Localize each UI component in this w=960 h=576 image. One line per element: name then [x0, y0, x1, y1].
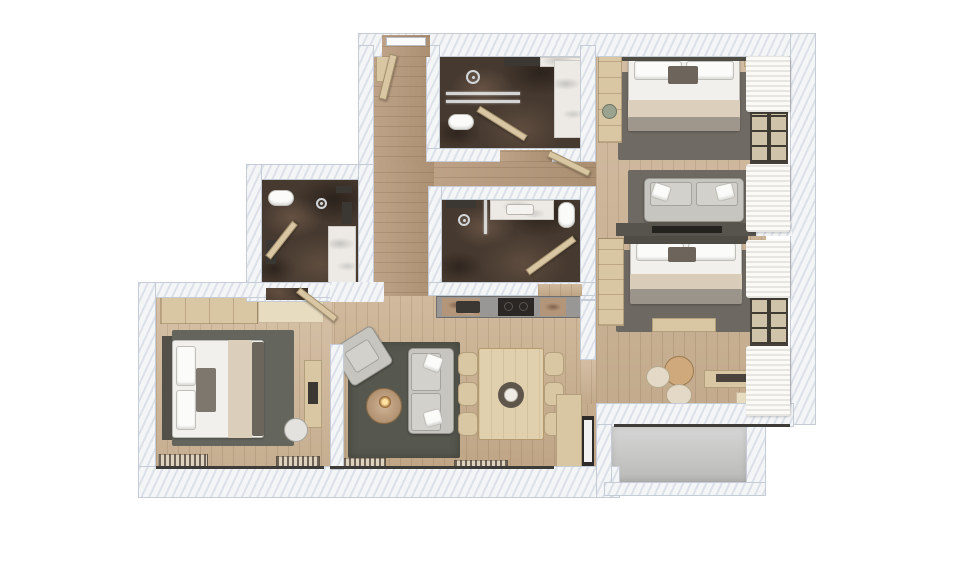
- window-line: [156, 466, 324, 469]
- floor-drain-icon: [458, 214, 470, 226]
- floor-plan: [0, 0, 960, 576]
- wall-balcony-right: [746, 424, 766, 490]
- laptop: [308, 382, 318, 404]
- bowl: [504, 388, 518, 402]
- sink: [506, 204, 534, 215]
- passage-to-bedroom-wing: [580, 360, 596, 404]
- nook-window-glass: [584, 420, 592, 462]
- bed-throw-gray: [628, 117, 740, 131]
- bathroom-1-door-gap: [500, 150, 552, 162]
- bed-bench: [652, 318, 716, 332]
- dining-chair: [458, 382, 478, 406]
- burner: [519, 302, 528, 311]
- toilet: [268, 190, 294, 206]
- curtain: [746, 56, 790, 112]
- bed-blanket-beige: [628, 100, 740, 118]
- bed-pillow: [176, 346, 196, 386]
- curtain: [746, 240, 790, 298]
- shower-glass: [446, 92, 520, 95]
- wardrobe-bedroom-3: [160, 296, 258, 324]
- shower-niche: [342, 202, 352, 224]
- entry-door-leaf: [386, 37, 426, 46]
- wall-left-wing-top: [138, 282, 346, 298]
- wall-divider-b: [580, 300, 596, 360]
- curtain: [746, 164, 790, 232]
- wall-balcony-bottom: [604, 482, 766, 496]
- wall-right: [790, 33, 816, 425]
- bathroom-shelf: [504, 57, 544, 66]
- candle: [379, 396, 391, 408]
- burner: [504, 302, 513, 311]
- bathroom-shelf: [446, 200, 476, 208]
- shower-head-icon: [466, 70, 480, 84]
- wall-bedroom-3-right: [330, 344, 344, 470]
- bed-runner: [668, 66, 698, 84]
- wall-bottom: [138, 466, 620, 498]
- wardrobe-bedroom-1: [598, 47, 622, 143]
- desk-chair: [284, 418, 308, 442]
- bed-runner: [196, 368, 216, 412]
- window: [750, 298, 788, 346]
- wall-junction: [330, 282, 384, 302]
- plant: [602, 104, 617, 119]
- shower-fixture: [336, 186, 352, 193]
- vanity: [328, 226, 356, 284]
- vanity: [554, 60, 582, 138]
- window-line: [330, 466, 554, 469]
- pouf: [646, 366, 670, 388]
- wall-bathroom-3-left: [428, 186, 442, 296]
- hall-cabinet: [556, 394, 582, 470]
- dining-chair: [544, 352, 564, 376]
- wardrobe-bedroom-2: [598, 238, 624, 326]
- toilet: [448, 114, 474, 130]
- bed-throw-gray: [630, 289, 742, 304]
- bed-headboard: [624, 236, 748, 244]
- shower-glass: [484, 200, 487, 234]
- bed-throw-gray: [252, 342, 264, 436]
- kitchen-sink: [456, 301, 480, 313]
- bed-runner: [668, 247, 696, 262]
- wall-bathroom-3-top: [428, 186, 596, 200]
- curtain: [746, 346, 790, 416]
- toilet: [558, 202, 575, 228]
- window: [750, 112, 788, 164]
- dining-chair: [458, 412, 478, 436]
- floor-balcony: [610, 425, 748, 482]
- bed-headboard: [162, 336, 172, 440]
- bed-blanket-beige: [228, 340, 252, 438]
- shower-head-icon: [316, 198, 327, 209]
- dining-chair: [458, 352, 478, 376]
- kitchen-marble-backsplash: [540, 298, 566, 316]
- shower-glass: [446, 100, 520, 103]
- wall-bathroom-2-top: [246, 164, 372, 180]
- wall-entrance-left: [358, 45, 374, 167]
- balcony-glass-door-line: [614, 424, 790, 427]
- bathroom-3-door-gap: [538, 284, 582, 296]
- wall-divider-a: [580, 45, 596, 162]
- tv: [652, 226, 722, 233]
- bed-blanket-beige: [630, 274, 742, 290]
- bed-pillow: [176, 390, 196, 430]
- wall-bathroom-1-left: [426, 45, 440, 162]
